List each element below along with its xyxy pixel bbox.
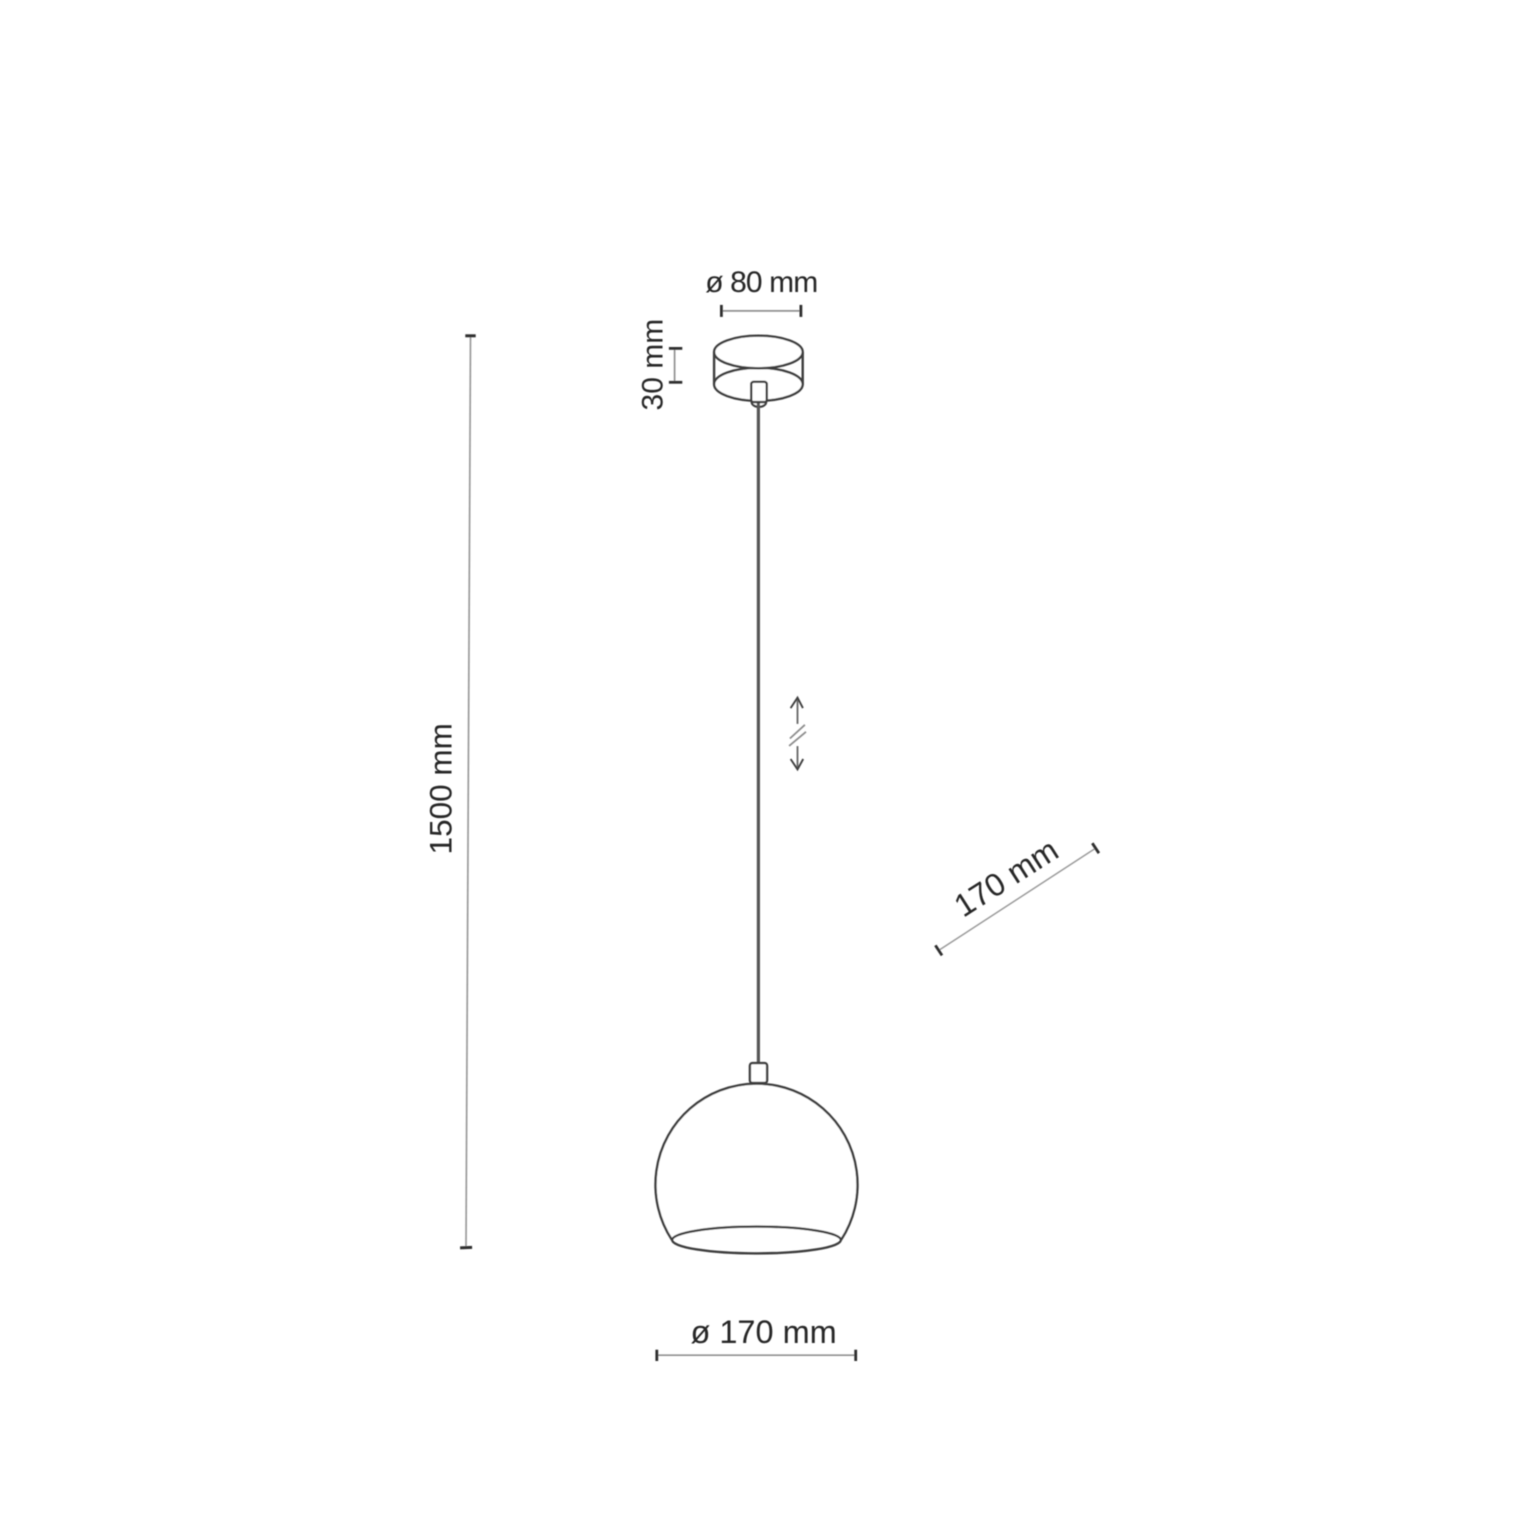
svg-text:30 mm: 30 mm xyxy=(637,319,670,411)
svg-text:1500 mm: 1500 mm xyxy=(423,723,459,854)
svg-text:ø 80 mm: ø 80 mm xyxy=(705,266,817,299)
svg-text:ø 170 mm: ø 170 mm xyxy=(690,1314,836,1350)
